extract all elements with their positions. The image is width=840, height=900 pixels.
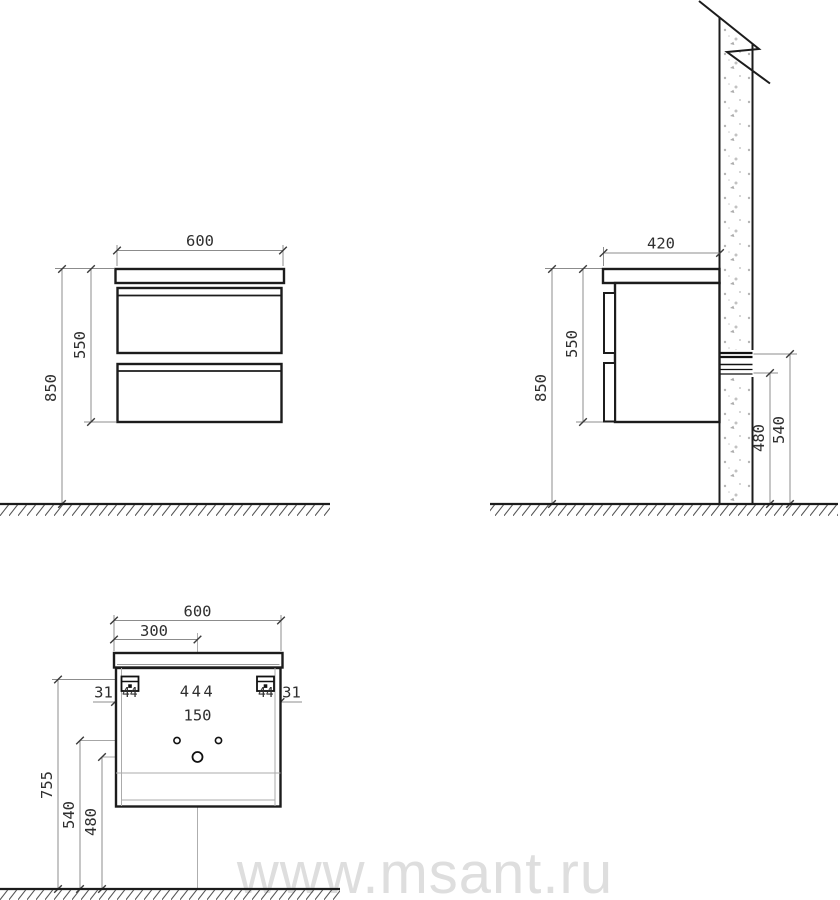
side-rail-upper-label: 540 [770,416,788,444]
side-depth-label: 420 [647,235,675,253]
fixing-hole-right [215,737,221,743]
front-overall-height-label: 850 [42,374,60,402]
side-cabinet-height-label: 550 [563,330,581,358]
technical-drawing-page: www.msant.ru 600 550 850 [0,0,840,900]
side-drawer-front-2 [604,363,615,422]
front-cabinet-height-label: 550 [71,331,89,359]
front-floor-hatch [0,505,330,516]
back-bracket-span-label: 444 [180,683,216,701]
side-drawer-front-1 [604,293,615,353]
back-drain-height-label: 480 [82,808,100,836]
side-cabinet-body [615,283,720,422]
vanity-dimension-drawing: www.msant.ru 600 550 850 [0,0,840,900]
fixing-hole-left [174,737,180,743]
back-bracket-left-label: 44 [122,686,138,701]
side-rail-lower-label: 480 [750,424,768,452]
back-floor-hatch [0,890,340,900]
front-countertop [116,269,285,283]
front-drawer-2 [118,364,282,422]
back-center-offset-label: 300 [140,622,168,640]
wall-section [720,17,753,504]
front-view: 600 550 850 [0,232,330,516]
side-floor-hatch [490,505,838,516]
drain-hole [193,752,203,762]
back-countertop [114,653,283,668]
side-view: 420 550 850 540 480 [490,1,838,516]
back-hanger-height-label: 755 [38,771,56,799]
side-countertop [603,269,720,283]
side-overall-height-label: 850 [532,374,550,402]
front-drawer-1 [118,288,282,353]
back-holes-height-label: 540 [60,801,78,829]
back-width-label: 600 [184,603,212,621]
back-edge-gap-left-label: 31 [94,684,113,702]
back-edge-gap-right-label: 31 [282,684,301,702]
front-width-label: 600 [186,232,214,250]
back-bracket-right-label: 44 [258,686,274,701]
back-hole-spacing-label: 150 [184,707,212,725]
